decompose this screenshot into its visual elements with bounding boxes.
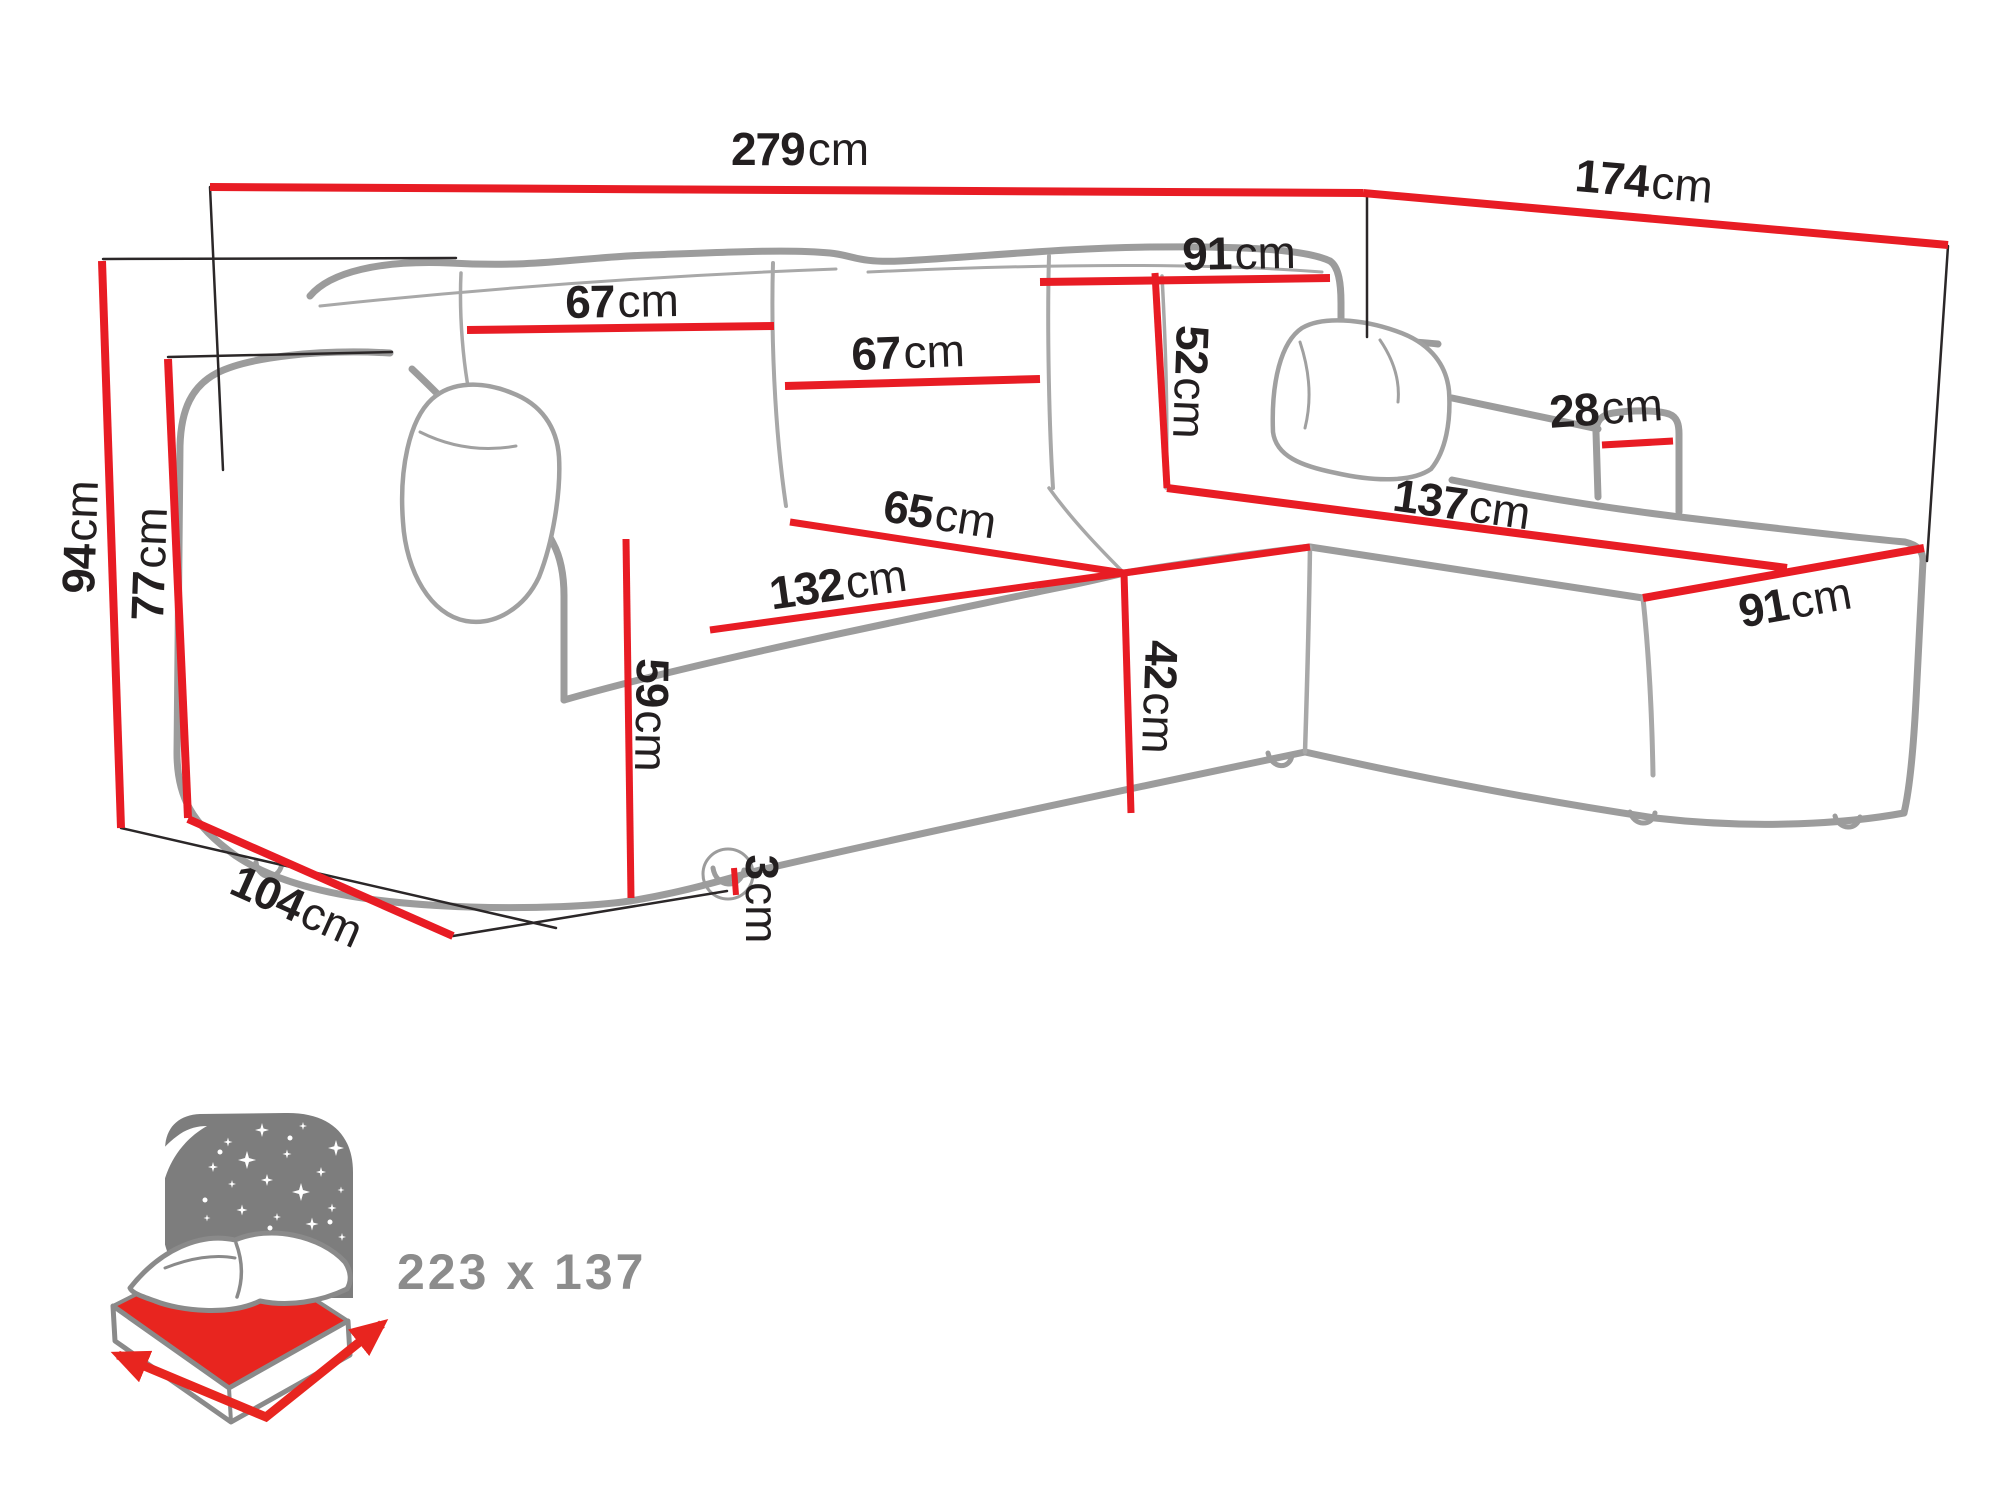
chaise-front-left-corner-edge <box>1305 547 1310 752</box>
dimension-diagram-page: 279cm 174cm 91cm 52cm 67cm 67cm 65cm 132… <box>0 0 2000 1500</box>
chaise-front-edge <box>1310 547 1643 598</box>
chaise-front-right-corner-edge <box>1643 598 1653 775</box>
ext-94-top <box>103 258 456 259</box>
dimension-label-leg-height: 3cm <box>739 855 785 944</box>
back-cushion-divider-2 <box>1048 256 1053 488</box>
dimension-label-corner-width: 91cm <box>1182 229 1296 277</box>
dimension-label-corner-height: 52cm <box>1166 324 1216 439</box>
dim-line-67-mid <box>785 379 1040 386</box>
mattress-icon <box>113 1233 350 1422</box>
dimension-label-right-armrest-width: 28cm <box>1548 381 1664 435</box>
left-pillow <box>402 385 559 622</box>
dimension-label-armrest-height: 59cm <box>628 658 676 772</box>
dim-line-corner-seat <box>1124 547 1310 573</box>
bed-size-label: 223 x 137 <box>397 1243 646 1301</box>
dimension-label-total-height: 94cm <box>55 479 105 594</box>
back-cushion-divider-1 <box>772 263 786 506</box>
dimension-label-seat-height: 42cm <box>1135 639 1185 754</box>
dimension-label-back-cushion-left: 67cm <box>565 277 679 325</box>
dimension-label-backrest-height: 77cm <box>124 506 174 621</box>
front-bottom-edge <box>630 752 1305 901</box>
dimension-label-total-depth: 174cm <box>1573 152 1715 210</box>
dimension-label-back-cushion-mid: 67cm <box>850 327 965 377</box>
dimension-label-total-width: 279cm <box>731 126 869 172</box>
ext-279-left <box>210 187 223 470</box>
backrest-top-edge <box>310 247 1330 296</box>
chaise-bottom-edge <box>1305 752 1904 824</box>
dim-line-279 <box>210 187 1363 193</box>
sleeping-function-icon <box>113 1113 382 1422</box>
ext-174-right <box>1927 246 1948 561</box>
sofa-dimension-drawing <box>0 0 2000 1500</box>
dim-line-28 <box>1602 441 1673 445</box>
dim-line-42 <box>1124 573 1131 813</box>
